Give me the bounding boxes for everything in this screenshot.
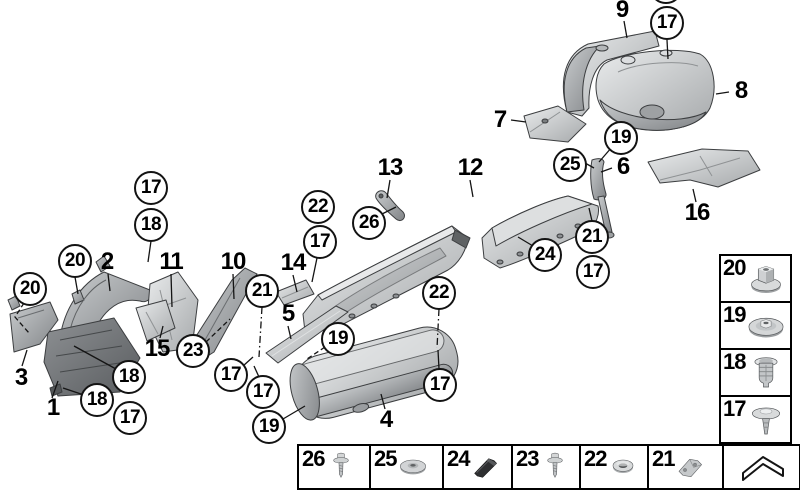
fastener-legend: 20191817 [719, 254, 792, 444]
part-label-3[interactable]: 3 [15, 364, 27, 392]
callout-19[interactable]: 19 [252, 410, 286, 444]
strip-item-number: 26 [302, 447, 324, 471]
callout-18[interactable]: 18 [134, 208, 168, 242]
part-label-12[interactable]: 12 [458, 154, 483, 182]
part-label-1[interactable]: 1 [47, 394, 59, 422]
strip-item-number: 22 [584, 447, 606, 471]
callout-22[interactable]: 22 [422, 276, 456, 310]
screw-icon [325, 448, 357, 484]
callout-17[interactable]: 17 [134, 171, 168, 205]
strip-item-26[interactable]: 26 [299, 446, 371, 488]
hex-flange-nut-icon [743, 258, 789, 299]
part-label-5[interactable]: 5 [282, 300, 294, 328]
part-label-6[interactable]: 6 [617, 153, 629, 181]
push-rivet-icon [743, 399, 789, 440]
callout-21[interactable]: 21 [245, 274, 279, 308]
callout-21[interactable]: 21 [575, 220, 609, 254]
part-label-14[interactable]: 14 [281, 249, 306, 277]
screw-icon [539, 448, 571, 484]
expansion-rivet-icon [743, 352, 789, 393]
part-label-9[interactable]: 9 [616, 0, 628, 24]
callout-18[interactable]: 18 [80, 383, 114, 417]
part-label-10[interactable]: 10 [221, 248, 246, 276]
callout-17[interactable]: 17 [303, 225, 337, 259]
part-label-8[interactable]: 8 [735, 77, 747, 105]
callout-18[interactable]: 18 [112, 360, 146, 394]
callout-19[interactable]: 19 [321, 322, 355, 356]
strip-item-24[interactable]: 24 [444, 446, 513, 488]
part-label-13[interactable]: 13 [378, 154, 403, 182]
strip-item-number: 25 [374, 447, 396, 471]
callout-17[interactable]: 17 [576, 255, 610, 289]
legend-item-17[interactable]: 17 [721, 395, 790, 442]
rubber-block-icon [470, 448, 502, 484]
callout-17[interactable]: 17 [214, 358, 248, 392]
part-label-16[interactable]: 16 [685, 199, 710, 227]
legend-item-20[interactable]: 20 [721, 256, 790, 301]
callout-17[interactable]: 17 [650, 6, 684, 40]
part-label-2[interactable]: 2 [101, 248, 113, 276]
legend-item-19[interactable]: 19 [721, 301, 790, 348]
callout-24[interactable]: 24 [528, 238, 562, 272]
callout-23[interactable]: 23 [176, 334, 210, 368]
callout-17[interactable]: 17 [113, 401, 147, 435]
callout-overlay: 1234567891011121314151617182020222617212… [0, 0, 800, 473]
strip-item-21[interactable]: 21 [649, 446, 724, 488]
washer-disc-icon [397, 448, 429, 484]
callout-20[interactable]: 20 [58, 244, 92, 278]
strip-item-number: 21 [652, 447, 674, 471]
callout-17[interactable]: 17 [246, 375, 280, 409]
callout-26[interactable]: 26 [352, 206, 386, 240]
continue-arrow-icon[interactable] [731, 451, 795, 485]
strip-item-number: 23 [516, 447, 538, 471]
clip-bracket-icon [675, 448, 707, 484]
callout-20[interactable]: 20 [13, 272, 47, 306]
strip-item-23[interactable]: 23 [513, 446, 581, 488]
callout-partial[interactable] [649, 0, 683, 4]
legend-item-18[interactable]: 18 [721, 348, 790, 395]
part-label-11[interactable]: 11 [159, 248, 182, 276]
callout-17[interactable]: 17 [423, 368, 457, 402]
part-label-7[interactable]: 7 [494, 106, 506, 134]
grommet-icon [607, 448, 639, 484]
fastener-strip: 262524232221 [297, 444, 800, 490]
strip-item-number: 24 [447, 447, 469, 471]
strip-continue-cell[interactable] [724, 446, 800, 488]
strip-item-25[interactable]: 25 [371, 446, 444, 488]
part-label-4[interactable]: 4 [380, 406, 392, 434]
callout-25[interactable]: 25 [553, 148, 587, 182]
disc-nut-icon [743, 305, 789, 346]
callout-19[interactable]: 19 [604, 121, 638, 155]
part-label-15[interactable]: 15 [145, 335, 170, 363]
strip-item-22[interactable]: 22 [581, 446, 649, 488]
callout-22[interactable]: 22 [301, 190, 335, 224]
